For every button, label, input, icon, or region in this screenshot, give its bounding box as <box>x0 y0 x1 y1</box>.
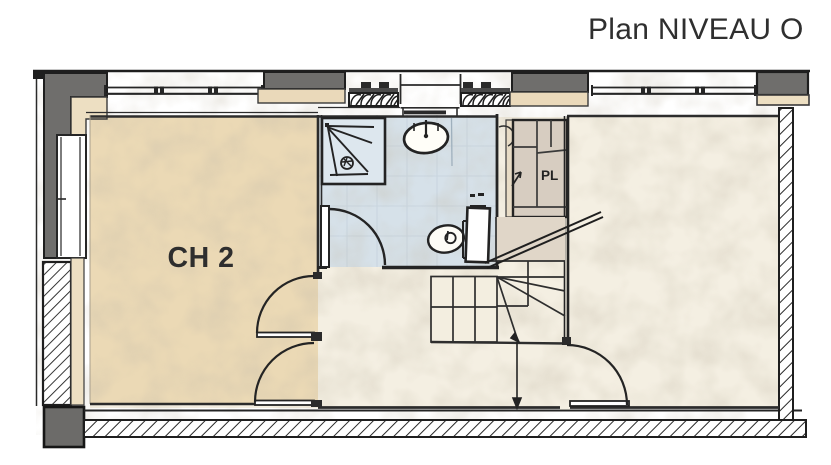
svg-text:CH 2: CH 2 <box>168 242 235 274</box>
svg-text:PL: PL <box>541 168 558 183</box>
svg-text:Plan NIVEAU O: Plan NIVEAU O <box>588 13 804 46</box>
